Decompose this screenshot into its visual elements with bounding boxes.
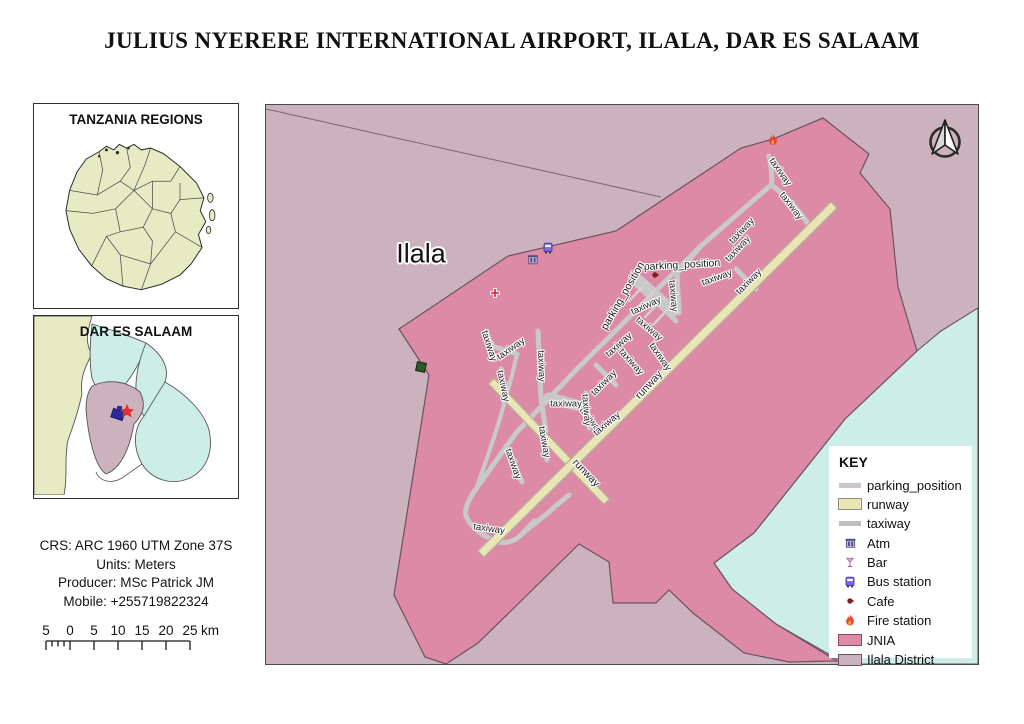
key-item-jnia: JNIA (837, 631, 964, 649)
inset-tanzania-title: TANZANIA REGIONS (34, 112, 238, 127)
key-item-label: Ilala District (867, 652, 934, 667)
bus-icon (542, 242, 554, 254)
scale-bar-ticks (32, 640, 252, 654)
taxiway-swatch (837, 521, 863, 526)
main-map-canvas: Ilala taxiwaytaxiwaytaxiwaytaxiwaytaxiwa… (265, 104, 979, 665)
mobile-line: Mobile: +255719822324 (26, 593, 246, 612)
inset-dar-title: DAR ES SALAAM (34, 324, 238, 339)
key-item-label: Fire station (867, 613, 931, 628)
key-item-label: runway (867, 497, 909, 512)
key-item-taxiway: taxiway (837, 515, 964, 533)
map-key-legend: KEY parking_positionrunwaytaxiwayAtmBarB… (829, 446, 972, 658)
key-item-label: Atm (867, 536, 890, 551)
inset-map-dar-es-salaam: DAR ES SALAAM (33, 315, 239, 499)
atm-icon (528, 255, 539, 266)
cafe-swatch (837, 596, 863, 606)
fire-icon (767, 134, 779, 147)
ilala-district-swatch (837, 654, 863, 666)
key-title: KEY (839, 454, 964, 470)
key-item-label: taxiway (867, 516, 910, 531)
scale-unit-label: km (201, 623, 219, 638)
parking-position-swatch (837, 483, 863, 488)
bar-swatch (837, 557, 863, 568)
cross-icon (490, 288, 501, 299)
dar-map-graphic (34, 316, 238, 495)
producer-line: Producer: MSc Patrick JM (26, 574, 246, 593)
map-info-block: CRS: ARC 1960 UTM Zone 37S Units: Meters… (26, 537, 246, 611)
crs-line: CRS: ARC 1960 UTM Zone 37S (26, 537, 246, 556)
key-item-atm: Atm (837, 534, 964, 552)
jnia-swatch (837, 634, 863, 646)
units-line: Units: Meters (26, 556, 246, 575)
page-title: JULIUS NYERERE INTERNATIONAL AIRPORT, IL… (0, 28, 1024, 54)
key-item-bus-station: Bus station (837, 573, 964, 591)
fire-swatch (837, 614, 863, 627)
inset-map-tanzania: TANZANIA REGIONS (33, 103, 239, 309)
key-item-label: JNIA (867, 633, 895, 648)
key-item-cafe: Cafe (837, 592, 964, 610)
key-item-parking-position: parking_position (837, 476, 964, 494)
key-item-fire-station: Fire station (837, 612, 964, 630)
runway-swatch (837, 498, 863, 510)
key-item-label: parking_position (867, 478, 962, 493)
map-layout-page: JULIUS NYERERE INTERNATIONAL AIRPORT, IL… (0, 0, 1024, 724)
key-item-label: Cafe (867, 594, 894, 609)
key-item-ilala-district: Ilala District (837, 651, 964, 669)
scale-label: 25 (182, 623, 197, 638)
boundary-poi-marker (415, 361, 427, 373)
scale-label: 5 (42, 623, 50, 638)
key-item-bar: Bar (837, 554, 964, 572)
key-item-label: Bar (867, 555, 887, 570)
scale-label: 15 (134, 623, 149, 638)
scale-label: 20 (158, 623, 173, 638)
scale-bar: 50510152025km (32, 623, 252, 663)
scale-label: 5 (90, 623, 98, 638)
key-item-runway: runway (837, 495, 964, 513)
north-arrow-icon (922, 116, 968, 162)
atm-swatch (837, 538, 863, 549)
bus-swatch (837, 576, 863, 588)
key-items: parking_positionrunwaytaxiwayAtmBarBus s… (837, 476, 964, 669)
tanzania-map-graphic (34, 104, 238, 308)
scale-label: 0 (66, 623, 74, 638)
scale-label: 10 (110, 623, 125, 638)
cafe-icon (650, 270, 660, 280)
key-item-label: Bus station (867, 574, 931, 589)
